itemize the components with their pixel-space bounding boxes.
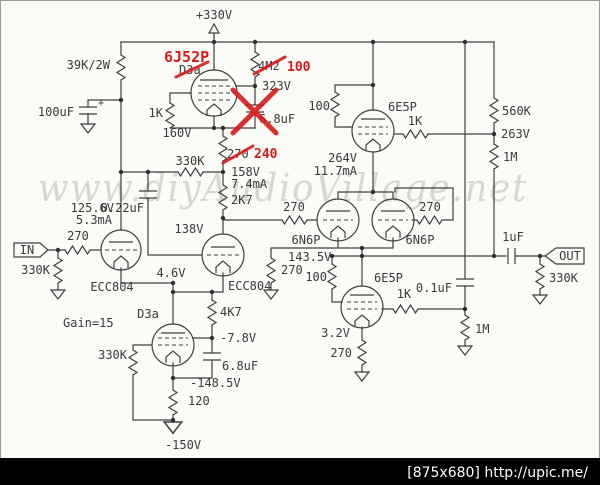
- resistor-100-lower: [328, 264, 336, 289]
- label-160v: 160V: [163, 126, 192, 140]
- label-330k-d3a: 330K: [98, 348, 128, 362]
- in-terminal: IN: [14, 243, 48, 257]
- label-1k-6j52p: 1K: [149, 106, 164, 120]
- resistor-270-lower-cathode: [358, 340, 366, 365]
- cap-1uf-output: [508, 248, 515, 264]
- label-1uf: 1uF: [502, 230, 524, 244]
- schematic-canvas: www.diyAudioVillage.net: [0, 0, 600, 485]
- label-100uf: 100uF: [38, 105, 74, 119]
- cap-0.1uf: [456, 279, 474, 286]
- resistor-270-grid-right: [417, 216, 442, 224]
- label-7.4ma: 7.4mA: [231, 177, 268, 191]
- label-138v: 138V: [175, 222, 204, 236]
- label-263v: 263V: [501, 127, 530, 141]
- label-120: 120: [188, 394, 210, 408]
- label-6e5p-lower: 6E5P: [374, 271, 403, 285]
- arrow-b-plus: [209, 24, 219, 33]
- annotation-100: 100: [287, 60, 311, 75]
- resistor-1k-6j52p: [166, 103, 174, 128]
- label-1k-upper: 1K: [408, 114, 423, 128]
- resistor-240: [219, 136, 227, 161]
- resistor-4k7: [208, 300, 216, 325]
- label-4k7: 4K7: [220, 305, 242, 319]
- label-143.5v: 143.5V: [288, 250, 331, 264]
- label-6n6p-right: 6N6P: [406, 233, 435, 247]
- cap-100uf: [79, 107, 97, 114]
- label-minus-150v: -150V: [165, 438, 201, 452]
- label-11.7ma: 11.7mA: [314, 164, 358, 178]
- ground-output: [533, 295, 547, 304]
- ground-1m: [458, 346, 472, 355]
- label-330k-input: 330K: [21, 263, 51, 277]
- label-330k-feedback: 330K: [176, 154, 206, 168]
- ground-100uf: [81, 124, 95, 133]
- footer-bar: [875x680] http://upic.me/: [0, 458, 600, 485]
- label-270-lower-cathode: 270: [330, 346, 352, 360]
- tube-ecc804-input: [101, 230, 141, 270]
- resistor-270-input: [65, 246, 90, 254]
- resistor-560k: [490, 98, 498, 123]
- label-560k: 560K: [502, 104, 532, 118]
- label-270-input: 270: [67, 229, 89, 243]
- label-ecc804-input: ECC804: [90, 280, 133, 294]
- tube-ecc804-driver: [202, 234, 244, 276]
- footer-caption: [875x680] http://upic.me/: [407, 465, 588, 481]
- out-terminal-label: OUT: [559, 249, 581, 263]
- label-39k-resistor: 39K/2W: [67, 58, 111, 72]
- label-100-lower: 100: [305, 270, 327, 284]
- label-ecc804-driver: ECC804: [228, 279, 271, 293]
- label-1m-right: 1M: [503, 150, 517, 164]
- label-minus-7.8v: -7.8V: [220, 331, 256, 345]
- out-terminal: OUT: [545, 248, 584, 264]
- tube-d3a-ccs: [152, 324, 194, 366]
- wires: [48, 33, 545, 422]
- label-270-grid-right: 270: [419, 200, 441, 214]
- label-6.8uf-d3a: 6.8uF: [222, 359, 258, 373]
- label-2k7: 2K7: [231, 193, 253, 207]
- resistor-1k-upper: [403, 130, 428, 138]
- resistor-330k-output: [536, 264, 544, 289]
- resistor-120: [169, 390, 177, 415]
- tube-6e5p-lower: [341, 286, 383, 328]
- label-gain: Gain=15: [63, 316, 114, 330]
- label-330k-output: 330K: [549, 271, 579, 285]
- label-5.3ma: 5.3mA: [76, 213, 113, 227]
- label-d3a-tube: D3a: [137, 307, 159, 321]
- tube-6e5p-upper: [352, 110, 394, 152]
- label-3.2v: 3.2V: [321, 326, 350, 340]
- label-1k-lower: 1K: [397, 287, 412, 301]
- resistor-330k-d3a: [129, 350, 137, 375]
- resistor-270-grid-left: [282, 216, 307, 224]
- label-b-plus: +330V: [196, 8, 232, 22]
- label-minus-148.5v: -148.5V: [190, 376, 241, 390]
- label-100-upper: 100: [308, 99, 330, 113]
- schematic-page: www.diyAudioVillage.net: [0, 0, 600, 485]
- label-270-cathode-gnd: 270: [281, 263, 303, 277]
- label-cap-polarity: +: [98, 98, 104, 109]
- cap-6.8uf-d3a: [203, 353, 221, 360]
- ground-input: [51, 290, 65, 299]
- annotation-240: 240: [254, 147, 278, 162]
- label-6n6p-left: 6N6P: [292, 233, 321, 247]
- resistor-39k-2w: [117, 55, 125, 80]
- resistor-100-upper: [331, 92, 339, 117]
- resistor-1k-lower: [393, 305, 418, 313]
- arrow-minus-150v: [164, 422, 182, 433]
- label-6e5p-upper: 6E5P: [388, 100, 417, 114]
- ground-lower-cathode: [355, 372, 369, 381]
- red-annotations: 6J52P D3a 4M2 100 270 240: [164, 48, 311, 163]
- label-270-grid-left: 270: [283, 200, 305, 214]
- ground-symbols: [51, 24, 547, 433]
- in-terminal-label: IN: [20, 243, 34, 257]
- label-264v: 264V: [328, 151, 357, 165]
- label-1m-lower: 1M: [475, 322, 489, 336]
- resistor-330k-input: [54, 258, 62, 283]
- label-0.1uf: 0.1uF: [416, 281, 452, 295]
- resistor-1m-lower: [461, 315, 469, 340]
- label-4.6v: 4.6V: [157, 266, 186, 280]
